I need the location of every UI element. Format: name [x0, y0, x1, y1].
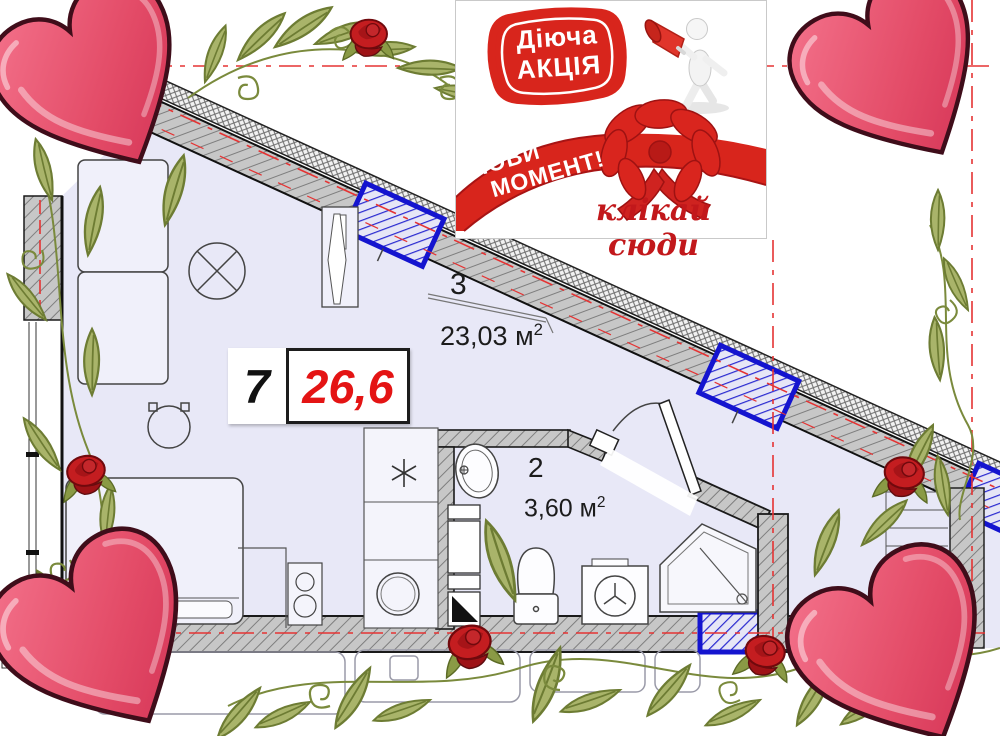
promo-banner[interactable]: Діюча АКЦІЯ ЛОВИ МОМЕНТ! клікай сюди — [455, 0, 767, 239]
promo-cta-link[interactable]: клікай сюди — [546, 193, 761, 263]
megaphone-icon — [642, 18, 684, 57]
promo-floorplan-ad: 3 23,03 м2 2 3,60 м2 7 26,6 — [0, 0, 1000, 736]
promo-seal-text: Діюча АКЦІЯ — [488, 18, 628, 87]
rose-icon-bottom-center — [437, 620, 504, 678]
promo-man-icon — [642, 18, 729, 114]
